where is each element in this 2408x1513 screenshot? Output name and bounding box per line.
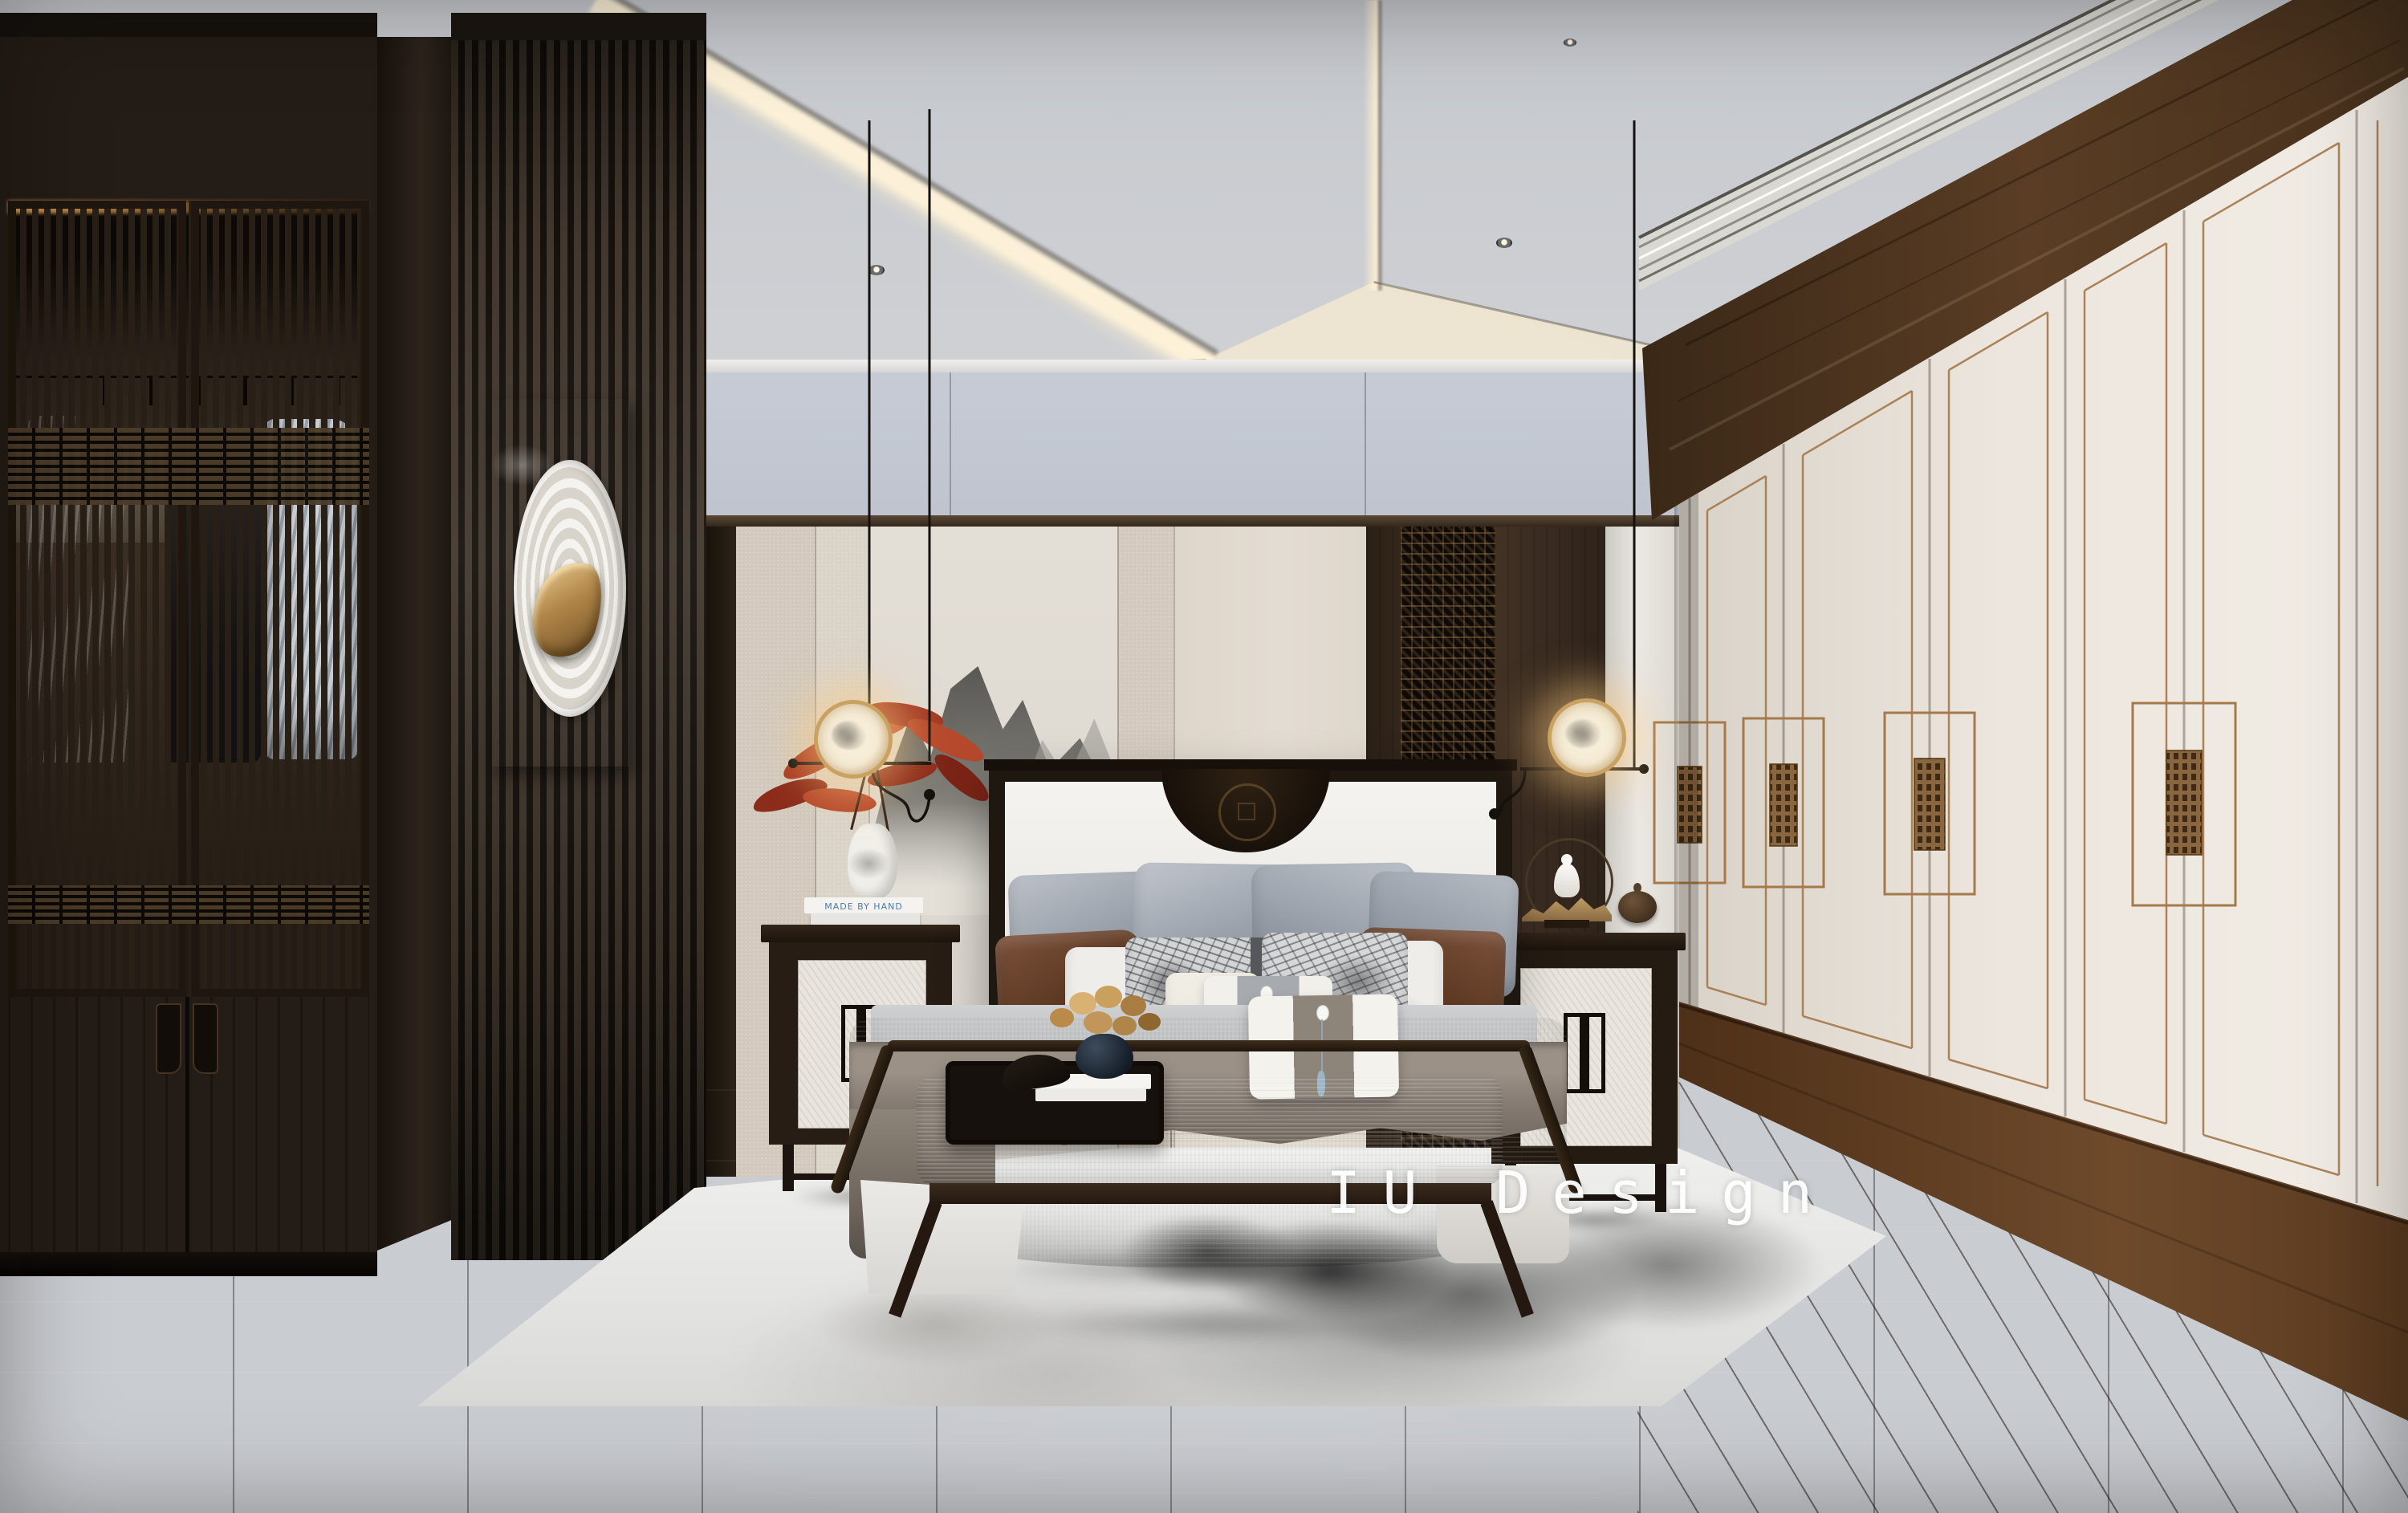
ceiling-spotlight [1564, 39, 1576, 47]
bedroom-interior-render: MADE BY HAND [0, 0, 2408, 1513]
slat-wall-header [451, 13, 706, 40]
wardrobe-bottom-shadow [0, 1252, 377, 1276]
guanyin-figurine-body [1554, 864, 1580, 897]
bronze-fret-handle [2166, 750, 2202, 855]
lattice-fret-band-upper [8, 428, 369, 505]
left-wardrobe-top [0, 13, 377, 37]
flower-cluster [1069, 992, 1096, 1015]
lattice-door-frame-right [191, 201, 369, 997]
cloud-carved-handle [156, 1003, 181, 1074]
flower-cluster [1084, 1011, 1112, 1034]
medallion-coin-square [1238, 803, 1255, 820]
wardrobe-lower-doors [8, 997, 369, 1262]
ring-lamp-left-landscape [832, 721, 867, 750]
dried-flowers [1045, 984, 1165, 1047]
ring-lamp-right-landscape [1565, 719, 1601, 748]
bronze-fret-handle [1770, 764, 1797, 846]
watermark-text: IU Design [1326, 1159, 1834, 1226]
foot-pillow-disc [1316, 1005, 1329, 1021]
flower-cluster [1050, 1008, 1074, 1027]
upper-wall-seam [1365, 372, 1366, 515]
fret-door-handle-bar [1580, 1013, 1589, 1093]
marble-vase [848, 824, 897, 901]
flower-cluster [1112, 1016, 1137, 1035]
ceiling-cove-vertical [1363, 0, 1390, 291]
bench-shadow [903, 1307, 1529, 1342]
wardrobe-lower-door-seam [185, 997, 189, 1262]
book-spine-text: MADE BY HAND [824, 901, 903, 912]
bronze-fret-handle [1914, 759, 1945, 850]
lattice-door-frame-left [8, 201, 186, 997]
nightstand-left-top [761, 925, 960, 942]
left-wardrobe-side-panel [377, 37, 451, 1251]
cloud-carved-handle [193, 1003, 218, 1074]
flower-cluster [1095, 986, 1122, 1008]
sculpture-base [1544, 920, 1589, 928]
watermark: IU Design [1326, 1159, 1834, 1226]
flower-cluster [1138, 1013, 1161, 1031]
lattice-fret-band-lower [8, 885, 369, 924]
stacked-books: MADE BY HAND [804, 897, 923, 913]
incense-burner-knob [1633, 883, 1641, 893]
tray-book-lower [1035, 1088, 1146, 1101]
flower-cluster [1121, 995, 1146, 1016]
bench-back-rail [888, 1040, 1530, 1051]
nightstand-left-leg [783, 1145, 794, 1191]
incense-burner [1618, 891, 1657, 923]
